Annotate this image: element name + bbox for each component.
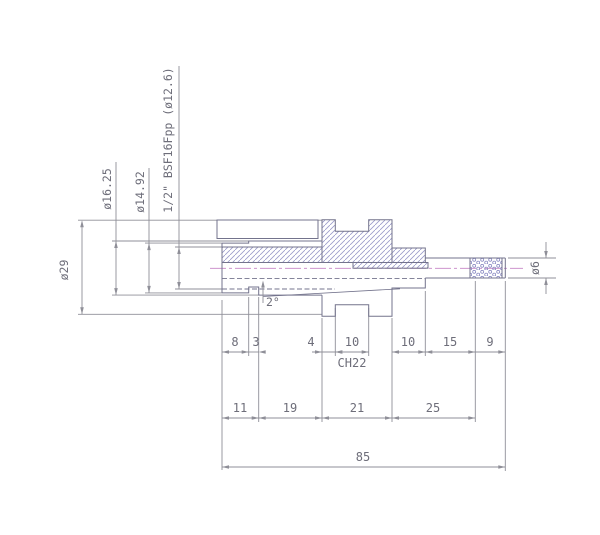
callout-d29: ø29 <box>57 260 71 281</box>
dim-row2-21: 21 <box>350 401 364 415</box>
dim-row1-9: 9 <box>486 335 493 349</box>
callout-d1492: ø14.92 <box>133 171 147 213</box>
dim-row1-15: 15 <box>443 335 457 349</box>
threaded-end <box>470 258 502 278</box>
drawing-page: ø29 ø16.25 ø14.92 1/2" BSF16Fpp (ø12.6) … <box>0 0 600 535</box>
dim-row1-10b: 10 <box>401 335 415 349</box>
dimension-labels: ø29 ø16.25 ø14.92 1/2" BSF16Fpp (ø12.6) … <box>57 67 542 464</box>
section-hatch-collar <box>392 248 425 263</box>
dim-row1-3: 3 <box>252 335 259 349</box>
dim-row2-11: 11 <box>233 401 247 415</box>
angle-note: 2° <box>266 295 280 309</box>
callout-d6: ø6 <box>528 261 542 275</box>
section-hatch-sleeve <box>222 247 322 263</box>
hex-note: CH22 <box>338 356 367 370</box>
phantom-component-outline <box>217 220 318 239</box>
callout-thread: 1/2" BSF16Fpp (ø12.6) <box>161 67 175 212</box>
taper-line <box>263 289 400 297</box>
dim-row1-4: 4 <box>307 335 314 349</box>
section-hatch-bore-step <box>353 263 428 269</box>
section-hatch-flange <box>322 220 392 263</box>
dim-row2-19: 19 <box>283 401 297 415</box>
dim-row1-8: 8 <box>231 335 238 349</box>
callout-d1625: ø16.25 <box>100 168 114 210</box>
dim-row1-10a: 10 <box>345 335 359 349</box>
technical-drawing-canvas: ø29 ø16.25 ø14.92 1/2" BSF16Fpp (ø12.6) … <box>0 0 600 535</box>
dim-row2-25: 25 <box>426 401 440 415</box>
dim-total-85: 85 <box>356 450 370 464</box>
